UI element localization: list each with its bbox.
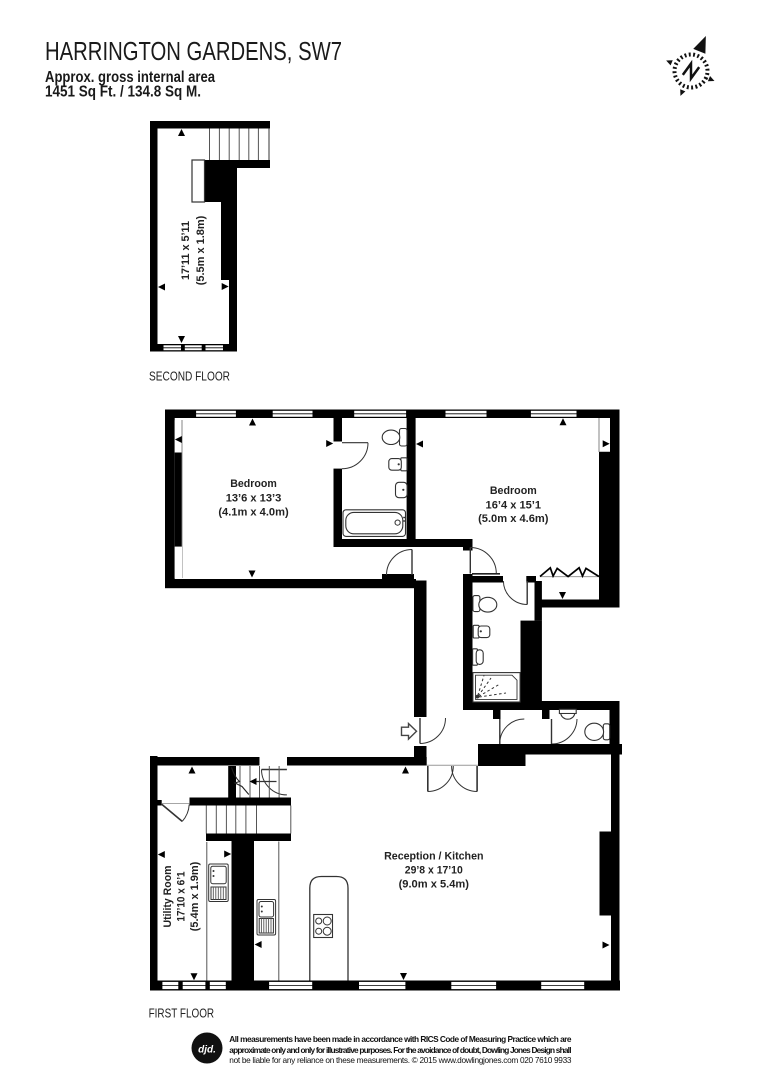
svg-text:16’4 x 15’1: 16’4 x 15’1 <box>486 499 542 511</box>
svg-text:13’6 x 13’3: 13’6 x 13’3 <box>226 492 282 504</box>
svg-text:Reception / Kitchen: Reception / Kitchen <box>384 851 483 863</box>
svg-text:(5.0m x 4.6m): (5.0m x 4.6m) <box>478 513 549 525</box>
svg-text:(5.5m x 1.8m): (5.5m x 1.8m) <box>195 216 207 286</box>
svg-text:SECOND FLOOR: SECOND FLOOR <box>149 368 230 383</box>
svg-text:29’8 x 17’10: 29’8 x 17’10 <box>405 865 463 877</box>
svg-text:(5.4m x 1.9m): (5.4m x 1.9m) <box>189 862 201 932</box>
svg-text:not be liable for any reliance: not be liable for any reliance on these … <box>229 1055 572 1065</box>
svg-text:(9.0m x 5.4m): (9.0m x 5.4m) <box>399 879 470 891</box>
svg-text:FIRST FLOOR: FIRST FLOOR <box>149 1006 215 1021</box>
svg-text:17’11 x 5’11: 17’11 x 5’11 <box>180 221 192 280</box>
svg-text:17’10 x 6’1: 17’10 x 6’1 <box>176 871 188 921</box>
svg-text:1451 Sq Ft. / 134.8 Sq M.: 1451 Sq Ft. / 134.8 Sq M. <box>45 84 201 101</box>
svg-text:(4.1m x 4.0m): (4.1m x 4.0m) <box>218 506 289 518</box>
svg-text:Bedroom: Bedroom <box>230 478 277 490</box>
svg-text:Utility Room: Utility Room <box>162 866 174 928</box>
svg-text:approximate only and only for: approximate only and only for illustrati… <box>229 1045 571 1055</box>
svg-text:HARRINGTON GARDENS, SW7: HARRINGTON GARDENS, SW7 <box>45 38 342 66</box>
svg-text:djd.: djd. <box>198 1045 216 1056</box>
svg-text:Bedroom: Bedroom <box>490 485 537 497</box>
svg-text:All measurements have been mad: All measurements have been made in accor… <box>229 1034 572 1044</box>
